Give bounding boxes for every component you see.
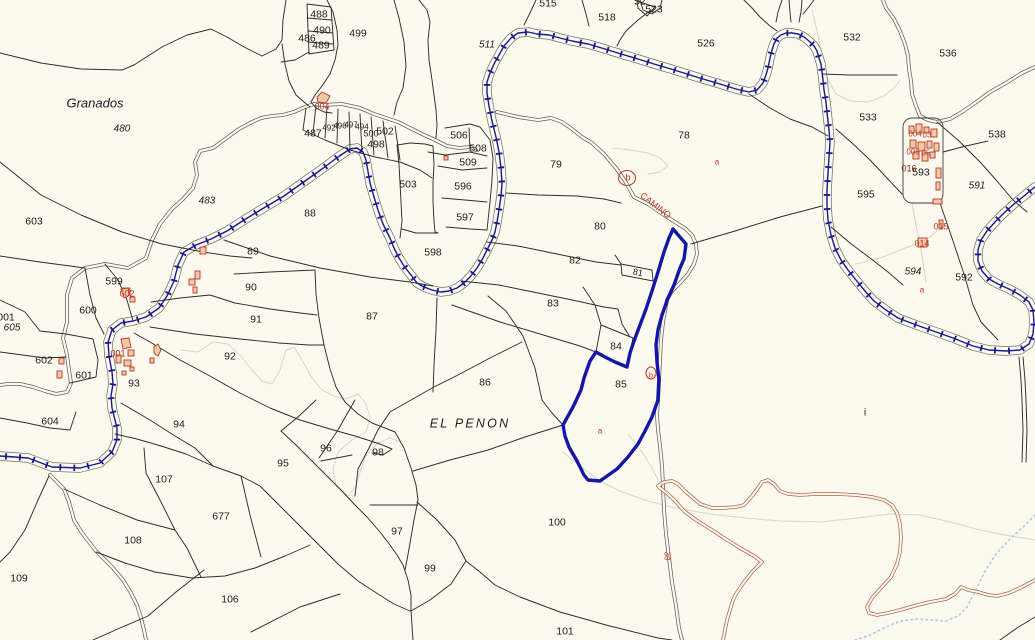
svg-text:677: 677 (212, 511, 230, 523)
svg-text:594: 594 (905, 267, 922, 278)
svg-text:89: 89 (247, 246, 259, 258)
svg-text:004: 004 (314, 102, 329, 112)
svg-text:a: a (920, 286, 925, 295)
svg-text:005: 005 (906, 148, 920, 157)
svg-text:100: 100 (548, 517, 566, 529)
svg-text:536: 536 (939, 48, 957, 60)
svg-text:83: 83 (547, 298, 559, 310)
svg-text:b: b (649, 371, 653, 380)
svg-text:596: 596 (454, 181, 472, 193)
svg-text:99: 99 (424, 563, 436, 575)
svg-text:52: 52 (634, 0, 646, 8)
svg-text:509: 509 (459, 157, 477, 169)
svg-text:503: 503 (399, 179, 417, 191)
svg-text:511: 511 (479, 40, 495, 51)
svg-text:88: 88 (304, 208, 316, 220)
svg-text:604: 604 (41, 416, 59, 428)
svg-text:487: 487 (304, 128, 322, 140)
svg-text:483: 483 (199, 196, 216, 207)
svg-text:591: 591 (969, 181, 986, 192)
svg-text:82: 82 (569, 255, 581, 267)
svg-text:109: 109 (10, 573, 28, 585)
svg-text:602: 602 (35, 355, 53, 367)
svg-text:78: 78 (678, 130, 690, 142)
svg-text:Granados: Granados (66, 96, 124, 111)
svg-text:518: 518 (598, 12, 616, 24)
svg-text:004: 004 (908, 130, 922, 139)
svg-text:595: 595 (857, 189, 875, 201)
svg-text:605: 605 (4, 323, 21, 334)
svg-text:107: 107 (155, 474, 173, 486)
svg-text:EL PENON: EL PENON (430, 417, 511, 431)
svg-text:538: 538 (988, 129, 1006, 141)
svg-text:488: 488 (310, 9, 328, 21)
svg-text:502: 502 (376, 126, 394, 138)
svg-text:014: 014 (914, 239, 929, 249)
svg-text:489: 489 (312, 40, 330, 52)
svg-text:96: 96 (320, 443, 332, 455)
svg-text:490: 490 (313, 25, 331, 37)
svg-text:600: 600 (79, 305, 97, 317)
svg-text:84: 84 (610, 341, 622, 353)
svg-text:480: 480 (114, 124, 131, 135)
svg-text:108: 108 (124, 535, 142, 547)
svg-text:86: 86 (479, 377, 491, 389)
svg-text:95: 95 (277, 458, 289, 470)
svg-text:97: 97 (391, 526, 403, 538)
svg-text:515: 515 (539, 0, 557, 10)
svg-text:016: 016 (901, 164, 916, 174)
svg-text:015: 015 (933, 222, 948, 232)
svg-text:81: 81 (632, 267, 644, 279)
svg-text:79: 79 (550, 159, 562, 171)
svg-text:106: 106 (221, 594, 239, 606)
svg-text:597: 597 (456, 212, 474, 224)
svg-text:a: a (715, 158, 720, 167)
svg-text:601: 601 (75, 370, 93, 382)
svg-text:85: 85 (615, 379, 627, 391)
svg-text:599: 599 (105, 276, 123, 288)
svg-text:523: 523 (645, 4, 663, 16)
svg-text:92: 92 (224, 351, 236, 363)
svg-text:91: 91 (250, 314, 262, 326)
svg-text:499: 499 (349, 28, 367, 40)
svg-text:87: 87 (366, 311, 378, 323)
svg-text:508: 508 (469, 143, 487, 155)
svg-text:498: 498 (367, 139, 385, 151)
svg-text:526: 526 (697, 38, 715, 50)
svg-text:602: 602 (119, 289, 134, 299)
svg-text:506: 506 (450, 130, 468, 142)
svg-text:30: 30 (663, 552, 672, 561)
svg-text:598: 598 (424, 247, 442, 259)
svg-text:592: 592 (955, 272, 973, 284)
svg-text:a: a (598, 427, 603, 436)
svg-text:i: i (864, 407, 866, 419)
svg-text:98: 98 (372, 447, 384, 459)
svg-text:533: 533 (859, 112, 877, 124)
svg-text:03: 03 (923, 131, 932, 140)
svg-text:603: 603 (25, 216, 43, 228)
svg-text:001: 001 (110, 349, 125, 359)
svg-text:93: 93 (128, 378, 140, 390)
svg-text:05: 05 (922, 149, 931, 158)
svg-text:532: 532 (843, 32, 861, 44)
svg-text:94: 94 (173, 419, 185, 431)
svg-text:90: 90 (245, 282, 257, 294)
svg-text:b: b (625, 173, 630, 183)
svg-text:101: 101 (556, 626, 574, 638)
svg-text:80: 80 (594, 221, 606, 233)
